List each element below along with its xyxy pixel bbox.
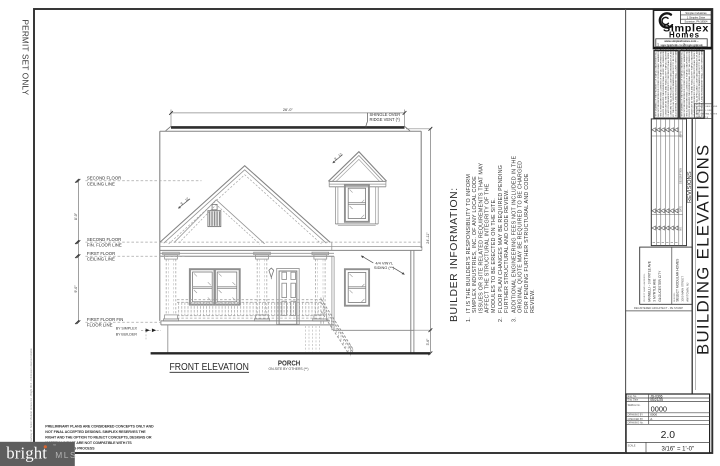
svg-text:Homes: Homes xyxy=(669,30,700,39)
svg-text:FIRST FLOOR FIN: FIRST FLOOR FIN xyxy=(87,317,123,322)
svg-text:VERIFY ALL DIMS: VERIFY ALL DIMS xyxy=(696,109,713,112)
svg-text:BY BUILDER: BY BUILDER xyxy=(116,333,138,337)
svg-text:CEILING LINE: CEILING LINE xyxy=(87,257,115,262)
svg-text:SHEET TITLE: SHEET TITLE xyxy=(696,117,709,119)
svg-text:2.0: 2.0 xyxy=(661,430,676,441)
svg-text:8'-0": 8'-0" xyxy=(74,212,78,220)
svg-text:2.: 2. xyxy=(498,317,504,322)
svg-text:1 Simplex Drive: 1 Simplex Drive xyxy=(687,15,706,19)
svg-text:NO.: NO. xyxy=(681,226,683,230)
svg-text:DO NOT SCALE DWGS: DO NOT SCALE DWGS xyxy=(696,105,718,108)
svg-text:PROJECT NAME & ADDRESS:: PROJECT NAME & ADDRESS: xyxy=(643,273,646,302)
svg-text:DRAWING BY: DRAWING BY xyxy=(628,414,644,417)
svg-text:REVIEW.: REVIEW. xyxy=(530,289,536,313)
svg-text:FURTHER STRUCTURAL AND CODE RE: FURTHER STRUCTURAL AND CODE REVIEW. xyxy=(504,189,510,313)
svg-text:PRELIMINARY PLANS ARE CONSIDER: PRELIMINARY PLANS ARE CONSIDERED CONCEPT… xyxy=(45,424,154,428)
svg-text:FLOOR PLAN CHANGES MAY BE REQU: FLOOR PLAN CHANGES MAY BE REQUIRED PENDI… xyxy=(498,165,504,313)
svg-text:BUILDER INFORMATION:: BUILDER INFORMATION: xyxy=(449,187,460,322)
svg-text:ORIGINAL QUOTE MAY BE REQUIRED: ORIGINAL QUOTE MAY BE REQUIRED TO BE CHA… xyxy=(518,161,524,313)
svg-text:3/16" = 1'-0": 3/16" = 1'-0" xyxy=(662,447,695,453)
svg-text:ADDITIONAL ENGINEERING FEES NO: ADDITIONAL ENGINEERING FEES NOT INCLUDED… xyxy=(511,156,517,313)
svg-text:IANNELLI - 3 MYRTLE AVE: IANNELLI - 3 MYRTLE AVE xyxy=(648,260,652,302)
svg-text:ON-SITE BY OTHERS (**): ON-SITE BY OTHERS (**) xyxy=(269,367,309,371)
svg-text:SIMPLEX INDUSTRIES, INC. OF AN: SIMPLEX INDUSTRIES, INC. OF ANY LOCAL CO… xyxy=(472,176,478,313)
svg-text:AFFECT THE STRUCTURAL INTEGRIT: AFFECT THE STRUCTURAL INTEGRITY OF THE xyxy=(485,183,491,313)
svg-text:FIRST FLOOR: FIRST FLOOR xyxy=(87,251,115,256)
svg-text:bright: bright xyxy=(6,444,47,463)
svg-text:BUILDING ELEVATIONS: BUILDING ELEVATIONS xyxy=(694,143,713,355)
svg-text:FOR PENDING FURTHER STRUCTURAL: FOR PENDING FURTHER STRUCTURAL AND CODE xyxy=(524,173,530,313)
svg-text:05/21/25: 05/21/25 xyxy=(650,398,663,402)
svg-text:MODULES TO BE ERECTED ON THE S: MODULES TO BE ERECTED ON THE SITE. xyxy=(491,198,497,313)
svg-text:DATE: DATE xyxy=(680,206,683,212)
svg-text:IT IS THE BUILDER'S RESPONSIBI: IT IS THE BUILDER'S RESPONSIBILITY TO IN… xyxy=(466,174,472,313)
svg-text:SCALE: SCALE xyxy=(628,445,636,448)
svg-text:PERMIT SET ONLY: PERMIT SET ONLY xyxy=(21,20,30,96)
svg-text:SECOND FLOOR: SECOND FLOOR xyxy=(87,237,121,242)
svg-text:3'-6": 3'-6" xyxy=(426,338,430,346)
svg-text:RIGHT AND THE OPTION TO REJECT: RIGHT AND THE OPTION TO REJECT CONCEPTS,… xyxy=(45,436,152,440)
svg-text:APPR.: APPR. xyxy=(680,130,683,137)
svg-text:1000 MAIN STREET: 1000 MAIN STREET xyxy=(681,276,685,302)
svg-text:SELECT MODULAR HOMES: SELECT MODULAR HOMES xyxy=(676,258,680,302)
svg-text:Simplex Industries: Simplex Industries xyxy=(685,11,707,15)
svg-text:RIDGE VENT (*): RIDGE VENT (*) xyxy=(370,117,401,122)
svg-text:3.: 3. xyxy=(511,317,517,322)
svg-text:DRAWING No.: DRAWING No. xyxy=(628,422,644,425)
svg-text:FIN. FLOOR LINE: FIN. FLOOR LINE xyxy=(87,243,122,248)
svg-text:ALL MATERIALS AND WORKMANSHIP: ALL MATERIALS AND WORKMANSHIP SHALL COMP… xyxy=(675,43,678,116)
svg-text:ANYTOWN, NJ: ANYTOWN, NJ xyxy=(686,282,690,302)
svg-text:1.: 1. xyxy=(466,317,472,322)
svg-text:DESCRIPTION: DESCRIPTION xyxy=(681,168,683,184)
svg-text:CHECKED BY: CHECKED BY xyxy=(628,418,644,421)
svg-text:9: 9 xyxy=(180,201,184,205)
svg-text:Courtesy of: Select Modular Ho: Courtesy of: Select Modular Homes Inc - … xyxy=(29,348,33,443)
svg-text:BY SIMPLEX: BY SIMPLEX xyxy=(116,327,138,331)
svg-text:FLOOR LINE: FLOOR LINE xyxy=(87,323,113,328)
svg-text:9'-0": 9'-0" xyxy=(74,285,78,293)
svg-text:12: 12 xyxy=(184,197,190,203)
svg-text:Eng. Date: Eng. Date xyxy=(628,399,639,402)
svg-text:ISSUES OR SITE RELATED REQUIRE: ISSUES OR SITE RELATED REQUIREMENTS THAT… xyxy=(478,163,484,313)
svg-text:www.simplexhomes.com ~: www.simplexhomes.com ~ xyxy=(663,39,699,43)
svg-text:12: 12 xyxy=(338,152,344,158)
svg-text:0000: 0000 xyxy=(650,413,657,417)
svg-text:9: 9 xyxy=(334,157,338,161)
svg-text:SECOND FLOOR: SECOND FLOOR xyxy=(87,176,121,181)
svg-text:SERIAL No.: SERIAL No. xyxy=(628,404,641,407)
svg-text:CEILING LINE: CEILING LINE xyxy=(87,181,115,186)
svg-text:™: ™ xyxy=(53,444,56,448)
svg-text:MLS: MLS xyxy=(55,450,77,460)
svg-text:GLOUCESTER CITY: GLOUCESTER CITY xyxy=(658,270,662,302)
svg-text:26'-0": 26'-0" xyxy=(283,107,294,112)
svg-text:24'-11": 24'-11" xyxy=(426,232,430,244)
svg-text:REGISTERED ARCHITECT - PE STAM: REGISTERED ARCHITECT - PE STAMP xyxy=(634,306,683,310)
svg-text:3 MYRTLE AVE: 3 MYRTLE AVE xyxy=(653,278,657,302)
svg-text:FRONT ELEVATION: FRONT ELEVATION xyxy=(170,362,249,373)
svg-text:NOT FINAL ACCEPTED DESIGNS. S: NOT FINAL ACCEPTED DESIGNS. SIMPLEX RESE… xyxy=(45,430,146,434)
svg-text:SEE GENERAL NOTES: SEE GENERAL NOTES xyxy=(696,112,718,115)
svg-text:SIDING (**): SIDING (**) xyxy=(374,265,395,270)
